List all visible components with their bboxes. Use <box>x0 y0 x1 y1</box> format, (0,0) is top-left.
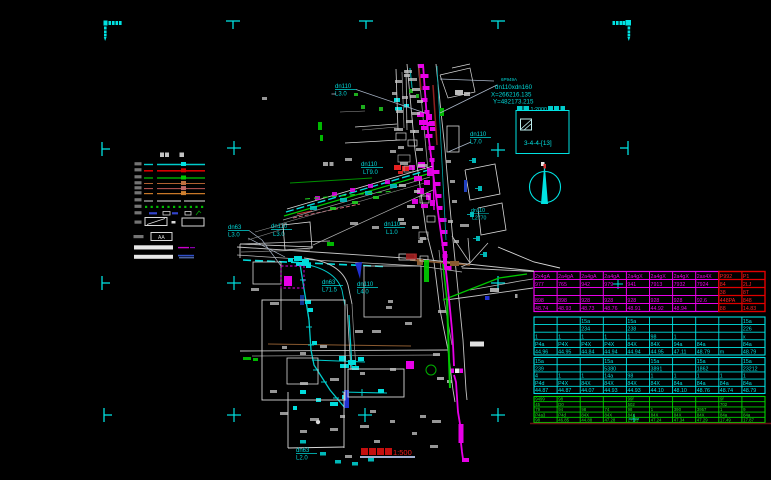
svg-text:1: 1 <box>558 334 561 340</box>
svg-text:1: 1 <box>558 374 561 380</box>
svg-text:98: 98 <box>651 334 657 340</box>
svg-text:Y=482173.215: Y=482173.215 <box>493 99 534 106</box>
svg-text:P4X: P4X <box>604 342 614 348</box>
svg-text:44.95: 44.95 <box>651 350 664 356</box>
svg-text:84a: 84a <box>697 381 706 387</box>
svg-text:x: x <box>743 334 746 340</box>
svg-text:L71.5: L71.5 <box>322 288 338 294</box>
svg-text:928: 928 <box>581 298 590 304</box>
svg-text:1: 1 <box>604 334 607 340</box>
svg-text:47.28: 47.28 <box>605 418 616 423</box>
svg-text:84a: 84a <box>743 342 752 348</box>
svg-text:941: 941 <box>627 282 636 288</box>
svg-text:46.85: 46.85 <box>558 418 569 423</box>
svg-text:44.94: 44.94 <box>627 350 640 356</box>
svg-text:1: 1 <box>535 334 538 340</box>
svg-text:44.07: 44.07 <box>581 388 594 394</box>
svg-text:44.96: 44.96 <box>535 350 548 356</box>
svg-text:44.92: 44.92 <box>651 306 664 312</box>
svg-text:48.76: 48.76 <box>697 388 710 394</box>
svg-text:942: 942 <box>581 282 590 288</box>
svg-text:1: 1 <box>743 374 746 380</box>
svg-text:898: 898 <box>558 298 567 304</box>
svg-text:48.94: 48.94 <box>674 306 687 312</box>
svg-text:P4a: P4a <box>535 342 544 348</box>
svg-text:48.79: 48.79 <box>743 350 756 356</box>
svg-text:94a: 94a <box>674 342 683 348</box>
svg-text:2x4gA: 2x4gA <box>535 274 550 280</box>
svg-text:84X: 84X <box>651 381 661 387</box>
svg-text:226: 226 <box>743 327 752 333</box>
svg-text:dn110: dn110 <box>384 222 401 228</box>
svg-text:L2.0: L2.0 <box>296 456 308 462</box>
svg-text:P992: P992 <box>720 274 732 280</box>
svg-text:928: 928 <box>627 298 636 304</box>
svg-text:84X: 84X <box>581 381 591 387</box>
svg-text:AA: AA <box>158 235 165 241</box>
svg-text:P4X: P4X <box>558 342 568 348</box>
svg-text:2a4gX: 2a4gX <box>674 274 690 280</box>
svg-text:47.34: 47.34 <box>674 418 685 423</box>
svg-text:44.88: 44.88 <box>581 418 592 423</box>
svg-text:17.93: 17.93 <box>628 418 639 423</box>
svg-text:dn110: dn110 <box>470 132 487 138</box>
svg-text:17.87: 17.87 <box>743 418 754 423</box>
svg-text:L4.0: L4.0 <box>357 290 369 296</box>
svg-text:1:500: 1:500 <box>393 448 412 457</box>
svg-text:44.84: 44.84 <box>581 350 594 356</box>
svg-text:15a: 15a <box>651 359 660 365</box>
svg-text:48.10: 48.10 <box>674 388 687 394</box>
svg-text:48.79: 48.79 <box>743 388 756 394</box>
svg-text:84a: 84a <box>743 381 752 387</box>
svg-text:84X: 84X <box>627 381 637 387</box>
svg-text:98: 98 <box>627 374 633 380</box>
svg-text:234: 234 <box>581 327 590 333</box>
svg-text:44.93: 44.93 <box>627 388 640 394</box>
svg-text:L7.0: L7.0 <box>470 140 482 146</box>
svg-text:238: 238 <box>627 327 636 333</box>
svg-text:1862: 1862 <box>697 366 709 372</box>
svg-text:88: 88 <box>720 306 726 312</box>
svg-text:P1: P1 <box>743 274 750 280</box>
svg-text:928: 928 <box>674 298 683 304</box>
svg-text:1: 1 <box>697 374 700 380</box>
svg-text:15a: 15a <box>697 359 706 365</box>
svg-text:L2770: L2770 <box>472 216 487 222</box>
svg-text:84X: 84X <box>651 342 661 348</box>
svg-text:3891: 3891 <box>651 366 663 372</box>
svg-text:84a: 84a <box>697 342 706 348</box>
svg-text:7913: 7913 <box>651 282 663 288</box>
svg-text:48.74: 48.74 <box>720 388 733 394</box>
svg-text:dn110: dn110 <box>335 84 352 90</box>
svg-text:1: 1 <box>627 334 630 340</box>
svg-text:928: 928 <box>604 298 613 304</box>
svg-text:448PA: 448PA <box>720 298 736 304</box>
svg-text:dn63: dn63 <box>296 448 310 454</box>
svg-text:1: 1 <box>674 374 677 380</box>
svg-text:84a: 84a <box>720 381 729 387</box>
svg-text:3-4-4-[13]: 3-4-4-[13] <box>524 140 552 147</box>
svg-text:5380: 5380 <box>604 366 616 372</box>
svg-text:977: 977 <box>535 282 544 288</box>
svg-text:P4d: P4d <box>535 381 544 387</box>
svg-text:44.87: 44.87 <box>535 388 548 394</box>
svg-text:1: 1 <box>651 374 654 380</box>
svg-text:44.94: 44.94 <box>604 350 617 356</box>
svg-text:2a4gX: 2a4gX <box>651 274 667 280</box>
svg-text:dn110: dn110 <box>361 162 378 168</box>
svg-text:2LJ: 2LJ <box>743 282 752 288</box>
svg-text:7932: 7932 <box>674 282 686 288</box>
svg-text:38: 38 <box>720 290 726 296</box>
svg-text:928: 928 <box>651 298 660 304</box>
svg-text:84: 84 <box>720 282 726 288</box>
svg-text:15a: 15a <box>627 319 636 325</box>
svg-text:17.49: 17.49 <box>720 418 731 423</box>
svg-text:84X: 84X <box>604 381 614 387</box>
svg-text:47.24: 47.24 <box>651 418 662 423</box>
svg-text:2a4gX: 2a4gX <box>627 274 643 280</box>
svg-text:15a: 15a <box>743 319 752 325</box>
svg-text:L3.0: L3.0 <box>335 92 347 98</box>
svg-text:P4X: P4X <box>581 342 591 348</box>
svg-text:44.10: 44.10 <box>651 388 664 394</box>
svg-text:2a4gA: 2a4gA <box>581 274 597 280</box>
svg-text:1: 1 <box>720 374 723 380</box>
svg-text:84X: 84X <box>627 342 637 348</box>
svg-text:7924: 7924 <box>697 282 709 288</box>
svg-text:2a4gA: 2a4gA <box>604 274 620 280</box>
svg-text:2a4gA: 2a4gA <box>558 274 574 280</box>
svg-text:L1.0: L1.0 <box>386 230 398 236</box>
svg-text:8T: 8T <box>743 290 750 296</box>
svg-text:LT9.0: LT9.0 <box>363 170 379 176</box>
svg-text:P4X: P4X <box>558 381 568 387</box>
svg-text:15a: 15a <box>743 359 752 365</box>
svg-text:15a: 15a <box>604 359 613 365</box>
svg-text:848: 848 <box>743 298 752 304</box>
svg-text:m: m <box>720 350 725 356</box>
svg-text:48.93: 48.93 <box>558 306 571 312</box>
svg-text:1: 1 <box>581 334 584 340</box>
svg-text:239: 239 <box>535 366 544 372</box>
svg-text:23212: 23212 <box>743 366 758 372</box>
svg-text:92.6: 92.6 <box>697 298 707 304</box>
svg-text:14.83: 14.83 <box>743 306 756 312</box>
svg-text:dn110: dn110 <box>357 282 374 288</box>
svg-text:15a: 15a <box>581 319 590 325</box>
svg-text:48.74: 48.74 <box>535 306 548 312</box>
svg-text:44.95: 44.95 <box>558 350 571 356</box>
svg-text:dn63: dn63 <box>228 225 242 231</box>
svg-text:765: 765 <box>558 282 567 288</box>
svg-text:dn110xdn160: dn110xdn160 <box>495 84 533 91</box>
svg-text:2ax4X: 2ax4X <box>697 274 712 280</box>
svg-text:1: 1 <box>674 334 677 340</box>
svg-text:48.79: 48.79 <box>697 350 710 356</box>
svg-text:dn63: dn63 <box>322 280 336 286</box>
svg-text:48.73: 48.73 <box>581 306 594 312</box>
svg-text:4: 4 <box>535 374 538 380</box>
svg-text:14a: 14a <box>604 374 613 380</box>
svg-text:L3.0: L3.0 <box>228 233 240 239</box>
svg-text:15a: 15a <box>535 359 544 365</box>
svg-text:98: 98 <box>535 418 540 423</box>
svg-text:47.29: 47.29 <box>697 418 708 423</box>
svg-text:44.93: 44.93 <box>604 388 617 394</box>
svg-text:6P949A: 6P949A <box>501 77 517 82</box>
svg-text:84a: 84a <box>674 381 683 387</box>
svg-text:898: 898 <box>535 298 544 304</box>
svg-text:X=266216.135: X=266216.135 <box>491 92 532 99</box>
svg-text:48.76: 48.76 <box>604 306 617 312</box>
svg-text:979: 979 <box>604 282 613 288</box>
svg-text:48.91: 48.91 <box>627 306 640 312</box>
svg-text:44.87: 44.87 <box>558 388 571 394</box>
svg-text:47.11: 47.11 <box>674 350 687 356</box>
svg-text:1: 1 <box>581 374 584 380</box>
